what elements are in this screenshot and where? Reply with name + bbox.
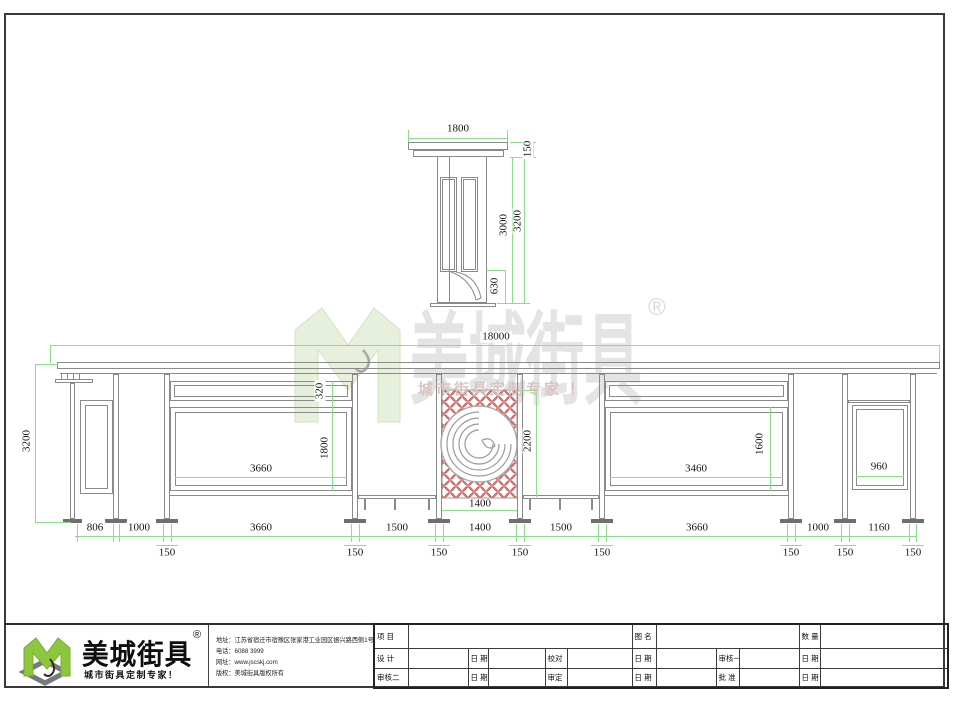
quantity-value-cell[interactable] <box>820 624 948 648</box>
dim-bay: 1000 <box>126 523 152 534</box>
drawing-page: 美城街具 ® 城市街具定制专家 ！ 1800 150 3000 3200 630… <box>0 0 960 704</box>
dim-right-panel-width: 3460 <box>683 464 709 475</box>
approve-final-value-cell[interactable] <box>567 668 632 688</box>
dim-totem-height: 2200 <box>523 428 534 454</box>
dim-total-width: 18000 <box>480 332 512 343</box>
dim-side-total-h: 3200 <box>513 208 524 234</box>
dim-bay: 3660 <box>684 523 710 534</box>
dim-left-panel-width: 3660 <box>248 464 274 475</box>
contact-address: 地址：江苏省宿迁市宿豫区张家港工业园区振兴路西侧1号 <box>216 635 364 646</box>
dim-bay: 1500 <box>548 523 574 534</box>
dim-right-panel-height: 1600 <box>755 431 766 457</box>
label-date: 日 期 <box>468 668 488 688</box>
side-bench-arm-cap <box>476 298 481 300</box>
dim-bay: 1160 <box>866 523 892 534</box>
dim-bay: 1000 <box>805 523 831 534</box>
date-value-cell[interactable] <box>656 648 716 668</box>
label-approve: 批 准 <box>716 668 739 688</box>
label-date: 日 期 <box>468 648 488 668</box>
label-drawing-name: 图 名 <box>632 624 656 648</box>
dim-strip-height: 320 <box>315 381 326 402</box>
brand-registered-mark: ® <box>193 629 201 641</box>
brand-slogan-text: 城市街具定制专家！ <box>84 668 179 681</box>
brand-name-text: 美城街具 <box>82 633 192 673</box>
label-review1: 审核一 <box>716 648 739 668</box>
date-value-cell[interactable] <box>820 648 948 668</box>
dim-side-roof: 150 <box>523 139 534 160</box>
dim-post: 150 <box>781 548 802 559</box>
dim-bay: 806 <box>85 523 106 534</box>
date-value-cell[interactable] <box>488 668 545 688</box>
watermark-slogan-text: 城市街具定制专家 ！ <box>418 378 587 399</box>
dim-side-bench-h: 630 <box>490 276 501 297</box>
label-date: 日 期 <box>799 668 820 688</box>
dim-end-panel-width: 960 <box>869 462 890 473</box>
dim-post: 150 <box>903 548 924 559</box>
contact-phone: 电话：6088 3999 <box>216 646 364 657</box>
dim-left-panel-height: 1800 <box>320 435 331 461</box>
label-project: 项 目 <box>374 624 408 648</box>
contact-copyright: 版权：美城街具版权所有 <box>216 668 364 679</box>
side-bench-arm <box>451 272 476 300</box>
label-design: 设 计 <box>374 648 408 668</box>
dim-post: 150 <box>429 548 450 559</box>
contact-website: 网址：www.jscskj.com <box>216 657 364 668</box>
label-date: 日 期 <box>632 668 656 688</box>
design-value-cell[interactable] <box>408 648 468 668</box>
dim-bay: 1400 <box>467 523 493 534</box>
dim-side-width: 1800 <box>445 124 471 135</box>
dim-bay: 3660 <box>248 523 274 534</box>
drawing-name-value-cell[interactable] <box>656 624 799 648</box>
title-block-table: 项 目 图 名 数 量 设 计 日 期 校对 日 期 审核一 日 期 审核二 日… <box>373 623 949 689</box>
proofread-value-cell[interactable] <box>567 648 632 668</box>
label-proofread: 校对 <box>545 648 567 668</box>
dim-post: 150 <box>345 548 366 559</box>
dim-totem-width: 1400 <box>467 499 493 510</box>
label-date: 日 期 <box>632 648 656 668</box>
dim-post: 150 <box>157 548 178 559</box>
contact-block: 地址：江苏省宿迁市宿豫区张家港工业园区振兴路西侧1号 电话：6088 3999 … <box>216 635 364 679</box>
dim-post: 150 <box>835 548 856 559</box>
dim-post: 150 <box>510 548 531 559</box>
date-value-cell[interactable] <box>820 668 948 688</box>
project-value-cell[interactable] <box>408 624 632 648</box>
date-value-cell[interactable] <box>656 668 716 688</box>
dim-bay: 1500 <box>384 523 410 534</box>
review2-value-cell[interactable] <box>408 668 468 688</box>
dim-side-column-h: 3000 <box>499 212 510 238</box>
label-date: 日 期 <box>799 648 820 668</box>
brand-logo-m-icon <box>24 638 70 676</box>
approve-value-cell[interactable] <box>739 668 799 688</box>
date-value-cell[interactable] <box>488 648 545 668</box>
footer-divider <box>208 625 209 686</box>
label-review2: 审核二 <box>374 668 408 688</box>
label-approve-final: 审定 <box>545 668 567 688</box>
review1-value-cell[interactable] <box>739 648 799 668</box>
drawing-artwork <box>0 0 960 704</box>
dim-post: 150 <box>592 548 613 559</box>
label-quantity: 数 量 <box>799 624 820 648</box>
dim-elevation-height: 3200 <box>22 428 33 454</box>
